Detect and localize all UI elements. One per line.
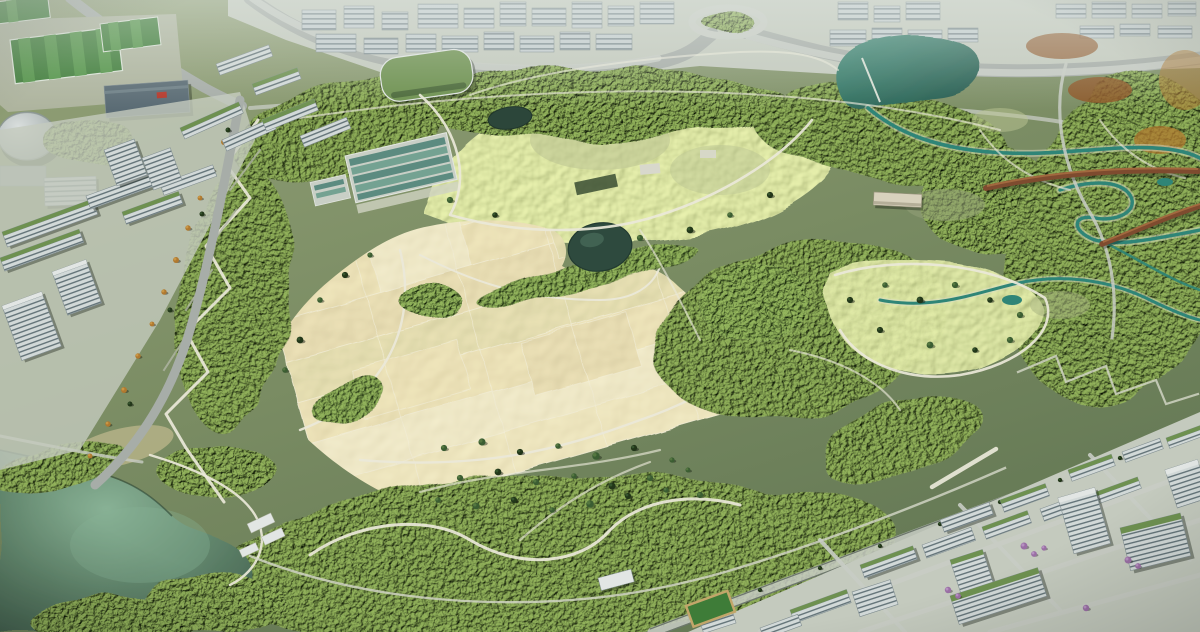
aerial-park-rendering: [0, 0, 1200, 632]
vignette: [0, 0, 1200, 632]
aerial-render-viewport: [0, 0, 1200, 632]
